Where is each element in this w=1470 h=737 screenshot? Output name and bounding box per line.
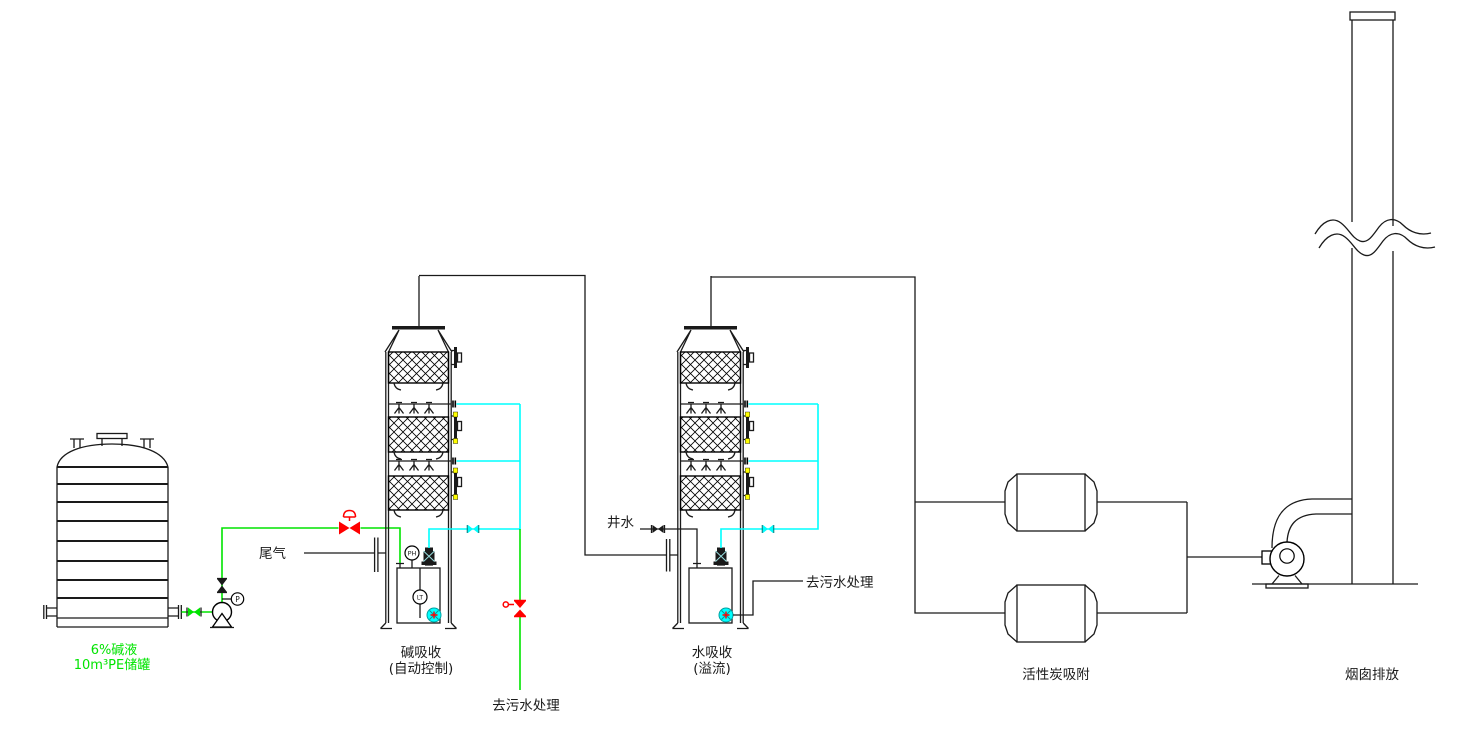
ph-analyzer: PH — [405, 546, 419, 568]
tank-side-nozzles — [44, 605, 182, 619]
pressure-gauge-tag: P — [235, 595, 240, 604]
wastewater-overflow-label: 去污水处理 — [806, 575, 874, 591]
process-flow-diagram: P PH LT — [0, 0, 1470, 737]
well-water-line — [640, 525, 701, 568]
storage-tank — [44, 434, 182, 628]
tank-spec-label-1: 6%碱液 — [91, 643, 138, 658]
water-scrubber-tower — [673, 276, 754, 629]
gas-duct-piping — [419, 276, 1263, 614]
pump-discharge-valve-icon — [217, 579, 227, 593]
wastewater-drain-label: 去污水处理 — [492, 698, 560, 714]
level-transmitter-tag: LT — [417, 595, 424, 602]
carbon-adsorber-bottom — [1005, 585, 1097, 642]
tower1-mode-label: (自动控制) — [389, 661, 454, 677]
tank-top-nozzles — [70, 434, 154, 449]
tower2-name-label: 水吸收 — [692, 645, 733, 661]
tower2-mode-label: (溢流) — [693, 661, 731, 677]
level-transmitter: LT — [413, 568, 427, 618]
carbon-adsorber-top — [1005, 474, 1097, 531]
tail-gas-label: 尾气 — [259, 546, 286, 562]
tail-gas-line — [304, 538, 386, 573]
exhaust-fan — [1262, 499, 1352, 588]
stack-label: 烟囱排放 — [1345, 667, 1399, 683]
caustic-control-valve-icon — [339, 511, 360, 535]
carbon-adsorber-label: 活性炭吸附 — [1022, 667, 1090, 683]
tower1-name-label: 碱吸收 — [401, 645, 442, 661]
drain-valve-icon — [503, 601, 526, 617]
tank-spec-label-2: 10m³PE储罐 — [74, 658, 150, 673]
diagram-svg: P PH LT — [0, 0, 1470, 737]
caustic-feed-line — [182, 528, 405, 612]
ph-analyzer-tag: PH — [408, 550, 417, 558]
stack — [1252, 12, 1435, 584]
feed-line-valve-icon — [187, 608, 201, 617]
well-water-label: 井水 — [607, 515, 635, 531]
feed-pump — [210, 603, 234, 628]
pipe-break-icon — [1315, 220, 1435, 256]
alkali-scrubber-tower — [381, 276, 462, 629]
